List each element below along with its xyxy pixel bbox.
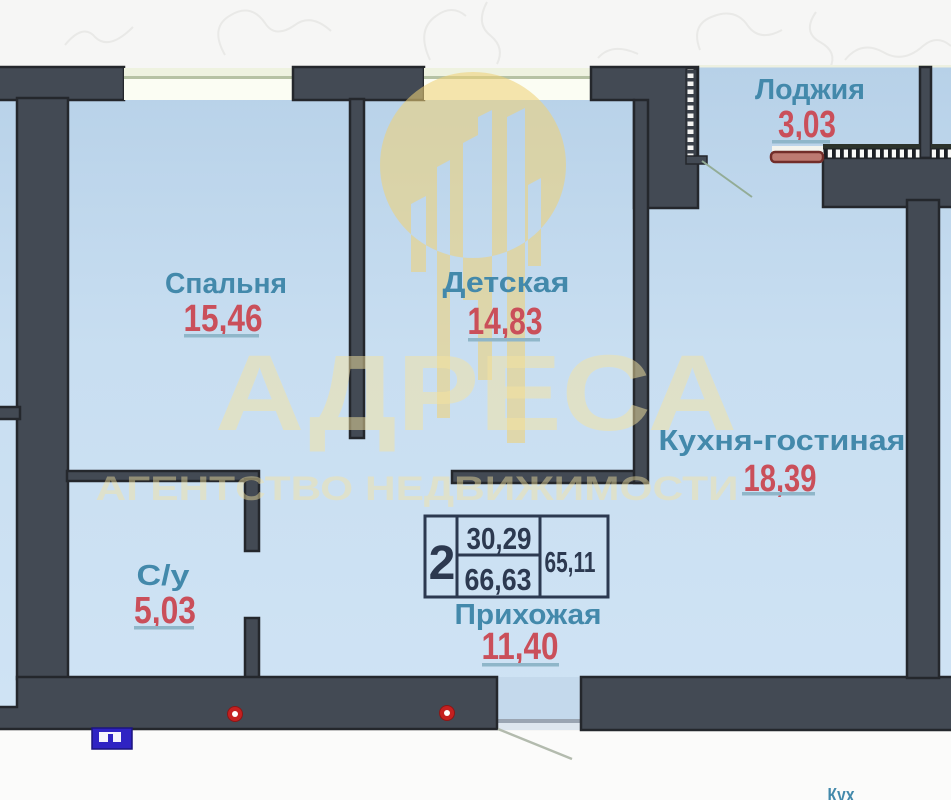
svg-text:АГЕНТСТВО НЕДВИЖИМОСТИ: АГЕНТСТВО НЕДВИЖИМОСТИ — [96, 470, 739, 508]
svg-text:Детская: Детская — [443, 267, 570, 299]
svg-text:Кух: Кух — [828, 785, 855, 800]
svg-text:65,11: 65,11 — [545, 547, 596, 579]
svg-text:5,03: 5,03 — [134, 590, 196, 632]
svg-text:11,40: 11,40 — [482, 626, 559, 668]
svg-text:Лоджия: Лоджия — [755, 74, 865, 106]
svg-text:Спальня: Спальня — [165, 268, 287, 300]
svg-text:С/у: С/у — [137, 560, 190, 592]
svg-text:Кухня-гостиная: Кухня-гостиная — [659, 425, 906, 457]
svg-text:66,63: 66,63 — [465, 562, 532, 597]
svg-text:3,03: 3,03 — [778, 104, 836, 146]
svg-text:15,46: 15,46 — [184, 298, 263, 340]
svg-text:2: 2 — [429, 537, 456, 590]
svg-text:14,83: 14,83 — [468, 301, 543, 343]
svg-text:30,29: 30,29 — [467, 521, 532, 556]
